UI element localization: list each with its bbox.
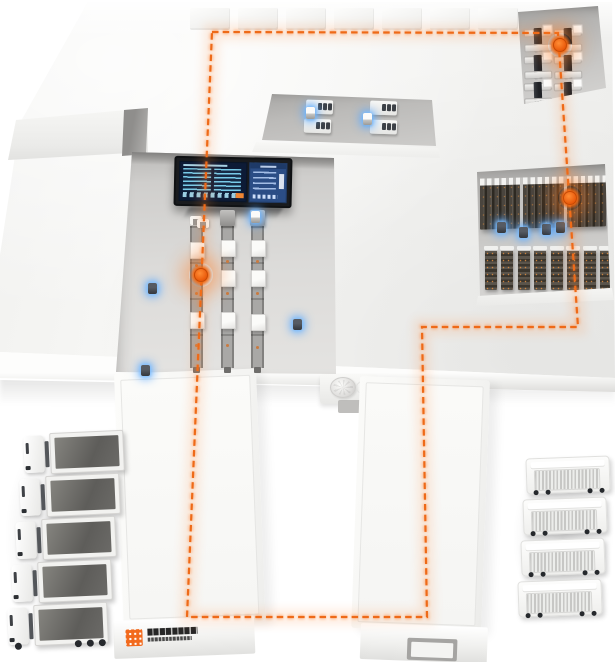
- machine-cube: [572, 78, 582, 87]
- rack-gap: [564, 176, 567, 227]
- brand-wordmark-line2: [148, 636, 192, 642]
- dashboard-right-sidebox: [279, 174, 284, 189]
- dashboard-shadow: [183, 207, 284, 219]
- dock-building-left: [114, 369, 266, 626]
- machine-cube: [572, 24, 582, 33]
- dashboard-table-column-b: [214, 169, 241, 193]
- dock-building-left-facade: [113, 616, 255, 659]
- pallet-stack: [518, 250, 530, 290]
- dashboard-right-rows: [252, 171, 275, 190]
- machine-cube: [572, 51, 582, 60]
- roof-step-notch: [122, 108, 148, 156]
- dashboard-status-row: [183, 192, 239, 198]
- machine-cube: [542, 24, 552, 33]
- palletizer-machine: [554, 28, 583, 53]
- pallet-stacks: [485, 250, 612, 290]
- dock-building-right: [351, 376, 490, 632]
- dashboard-right-title: [260, 166, 276, 168]
- palletizer-machine: [524, 28, 553, 53]
- machine-cube: [542, 78, 552, 87]
- dashboard-table-column-a: [183, 168, 211, 192]
- control-dashboard: [173, 156, 292, 208]
- truck-fleet-shadow: [4, 428, 120, 646]
- pallet-stack: [551, 250, 563, 290]
- dashboard-right-header: [250, 163, 287, 169]
- roof-fan-icon: [330, 377, 356, 398]
- dashboard-screen-left: [179, 161, 247, 202]
- pallet-stack: [567, 250, 579, 290]
- dashboard-left-header: [183, 164, 227, 167]
- brand-wordmark-line1: [147, 627, 197, 636]
- dashboard-screen-right: [248, 162, 287, 203]
- pallet-stack: [501, 250, 513, 290]
- brand-wordmark: [147, 627, 197, 642]
- van-fleet-shadow: [512, 454, 614, 622]
- storage-bay: [472, 162, 613, 300]
- pallet-stack: [534, 250, 546, 290]
- palletizer-machine: [554, 55, 583, 80]
- warehouse-scene: [0, 0, 615, 662]
- pallet-stack: [485, 250, 497, 290]
- brand-logo: [125, 627, 198, 647]
- dock-door: [407, 638, 458, 662]
- pallet-stack: [584, 250, 596, 290]
- dashboard-orange-chip: [235, 193, 243, 198]
- rack-gap: [520, 178, 523, 229]
- machine-cube: [542, 51, 552, 60]
- palletizer-machine: [524, 55, 553, 80]
- dock-building-right-facade: [360, 623, 488, 662]
- storage-rack-row: [480, 180, 606, 229]
- dashboard-right-numbers: [252, 194, 277, 199]
- brand-logo-mark-icon: [125, 629, 143, 647]
